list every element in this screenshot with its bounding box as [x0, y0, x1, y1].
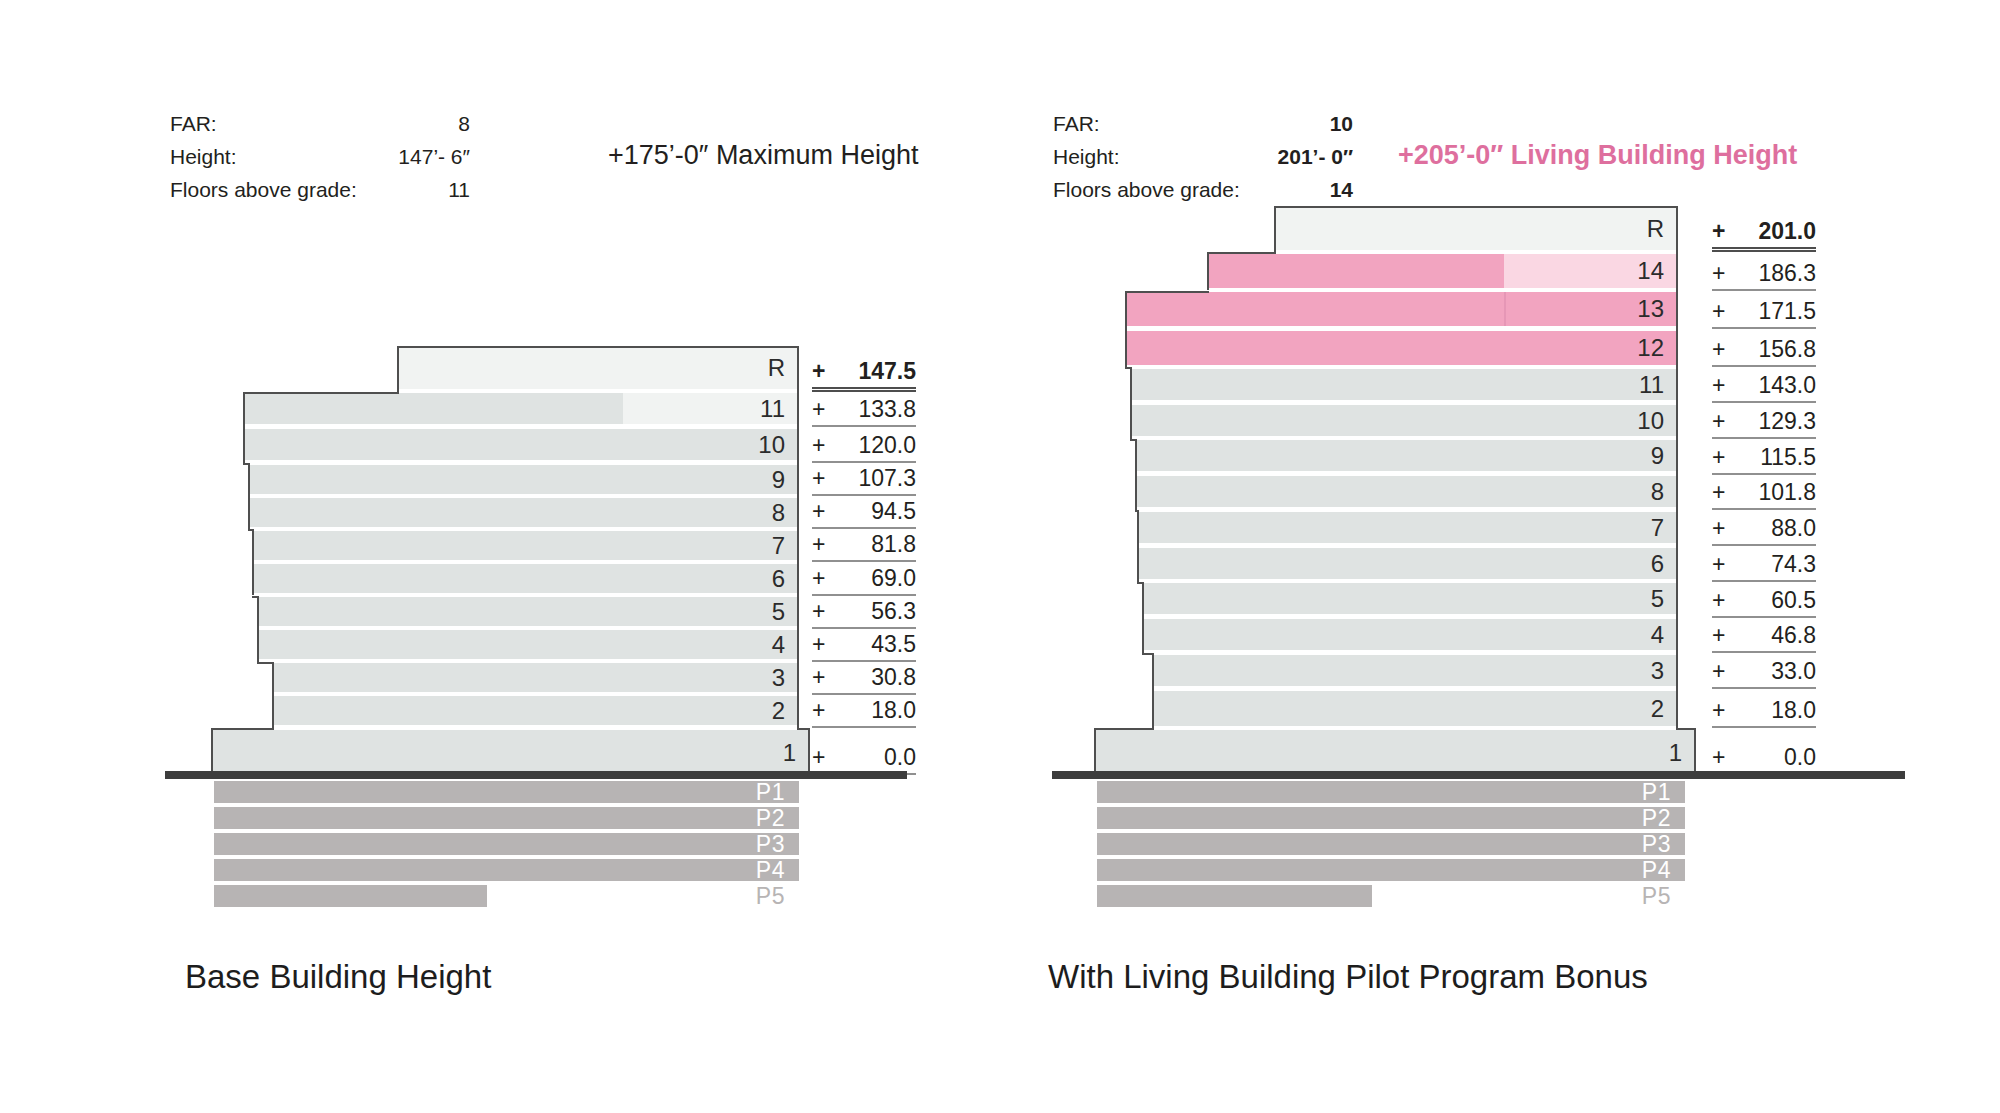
parking-level-label: P1	[1571, 780, 1671, 804]
floor-label: 11	[243, 393, 785, 424]
building-outline-segment	[1152, 689, 1154, 728]
parking-level-label: P2	[685, 806, 785, 830]
parking-level-label: P5	[1571, 884, 1671, 908]
floor-label: 7	[1137, 512, 1664, 543]
building-outline-segment	[1137, 546, 1139, 582]
elevation-number: 30.8	[871, 664, 916, 691]
building-outline-segment	[257, 596, 259, 629]
elevation-plus-sign: +	[1712, 298, 1725, 325]
elevation-number: 18.0	[871, 697, 916, 724]
parking-level-bar	[1097, 885, 1372, 907]
building-outline-segment	[1130, 367, 1132, 403]
parking-level-label: P2	[1571, 806, 1671, 830]
floor-label: 11	[1130, 369, 1664, 400]
floor-label: 9	[248, 465, 785, 494]
floor-label: 6	[1137, 548, 1664, 579]
elevation-plus-sign: +	[812, 531, 825, 558]
elevation-value: +30.8	[812, 663, 916, 695]
elevation-plus-sign: +	[1712, 697, 1725, 724]
elevation-number: 147.5	[858, 358, 916, 385]
elevation-value: +171.5	[1712, 297, 1816, 329]
building-outline-segment	[211, 728, 213, 775]
elevation-value: +101.8	[1712, 478, 1816, 510]
building-outline-segment	[1274, 206, 1676, 208]
building-outline-segment	[243, 427, 245, 463]
elevation-value: +33.0	[1712, 657, 1816, 689]
elevation-plus-sign: +	[812, 432, 825, 459]
floor-label: 1	[1094, 730, 1682, 775]
right-stats-block: FAR: 10 Height: 201’- 0″ Floors above gr…	[1053, 112, 1353, 211]
floor-label: 13	[1125, 292, 1664, 326]
elevation-plus-sign: +	[812, 565, 825, 592]
building-outline-segment	[1207, 252, 1209, 290]
elevation-plus-sign: +	[1712, 744, 1725, 771]
elevation-value: +156.8	[1712, 335, 1816, 367]
elevation-plus-sign: +	[1712, 218, 1725, 245]
left-stats-block: FAR: 8 Height: 147’- 6″ Floors above gra…	[170, 112, 470, 211]
floor-label: 8	[1135, 476, 1664, 507]
building-outline-segment	[1694, 728, 1696, 775]
elevation-value: +115.5	[1712, 443, 1816, 475]
elevation-number: 56.3	[871, 598, 916, 625]
ground-line	[1052, 771, 1905, 779]
building-outline-segment	[252, 562, 254, 595]
building-outline-segment	[1137, 510, 1139, 546]
elevation-plus-sign: +	[812, 631, 825, 658]
elevation-number: 143.0	[1758, 372, 1816, 399]
elevation-number: 186.3	[1758, 260, 1816, 287]
parking-level-label: P3	[1571, 832, 1671, 856]
building-outline-segment	[1142, 618, 1144, 654]
building-outline-segment	[1135, 475, 1137, 511]
elevation-number: 81.8	[871, 531, 916, 558]
parking-level-label: P4	[685, 858, 785, 882]
building-outline-segment	[243, 392, 399, 394]
floor-label: 3	[272, 663, 785, 692]
stat-value: 10	[1265, 112, 1353, 136]
max-height-annotation: +175’-0″ Maximum Height	[608, 140, 918, 171]
building-outline-segment	[252, 529, 254, 562]
floor-label: R	[397, 347, 785, 389]
stat-row-far: FAR: 10	[1053, 112, 1353, 145]
floor-label: 12	[1125, 331, 1664, 365]
parking-level-label: P3	[685, 832, 785, 856]
elevation-plus-sign: +	[812, 396, 825, 423]
building-outline-segment	[1094, 728, 1096, 775]
stat-row-height: Height: 201’- 0″	[1053, 145, 1353, 178]
elevation-value: +18.0	[1712, 696, 1816, 728]
building-outline-segment	[397, 346, 797, 348]
building-outline-segment	[1130, 403, 1132, 439]
elevation-value: +74.3	[1712, 550, 1816, 582]
building-outline-segment	[1676, 728, 1696, 730]
floor-label: 8	[248, 498, 785, 527]
elevation-plus-sign: +	[1712, 658, 1725, 685]
elevation-value: +147.5	[812, 360, 916, 392]
elevation-number: 171.5	[1758, 298, 1816, 325]
elevation-value: +18.0	[812, 696, 916, 728]
building-outline-segment	[272, 695, 274, 728]
elevation-value: +107.3	[812, 464, 916, 496]
elevation-number: 201.0	[1758, 218, 1816, 245]
stat-label: Floors above grade:	[170, 178, 382, 202]
elevation-value: +60.5	[1712, 586, 1816, 618]
elevation-value: +94.5	[812, 497, 916, 529]
parking-level-label: P1	[685, 780, 785, 804]
elevation-number: 43.5	[871, 631, 916, 658]
floor-label: 10	[1130, 405, 1664, 436]
right-caption: With Living Building Pilot Program Bonus	[1048, 958, 1648, 996]
elevation-number: 120.0	[858, 432, 916, 459]
floor-label: 5	[1142, 583, 1664, 614]
parking-level-label: P5	[685, 884, 785, 908]
elevation-value: +186.3	[1712, 259, 1816, 291]
stat-value: 11	[382, 178, 470, 202]
stat-row-height: Height: 147’- 6″	[170, 145, 470, 178]
elevation-value: +81.8	[812, 530, 916, 562]
building-outline-segment	[243, 463, 250, 465]
stat-label: Floors above grade:	[1053, 178, 1265, 202]
elevation-number: 69.0	[871, 565, 916, 592]
elevation-plus-sign: +	[1712, 587, 1725, 614]
elevation-value: +69.0	[812, 564, 916, 596]
building-outline-segment	[1142, 653, 1154, 655]
elevation-value: +88.0	[1712, 514, 1816, 546]
elevation-value: +133.8	[812, 395, 916, 427]
building-outline-segment	[243, 392, 245, 428]
building-outline-segment	[1125, 291, 1127, 329]
floor-label: 4	[257, 630, 785, 659]
elevation-number: 94.5	[871, 498, 916, 525]
stat-row-floors: Floors above grade: 11	[170, 178, 470, 211]
elevation-plus-sign: +	[1712, 260, 1725, 287]
elevation-plus-sign: +	[812, 465, 825, 492]
elevation-value: +129.3	[1712, 407, 1816, 439]
stat-value: 8	[382, 112, 470, 136]
elevation-plus-sign: +	[812, 498, 825, 525]
floor-label: 14	[1207, 254, 1664, 288]
floor-label: 7	[252, 531, 785, 560]
elevation-number: 156.8	[1758, 336, 1816, 363]
elevation-plus-sign: +	[812, 598, 825, 625]
elevation-number: 18.0	[1771, 697, 1816, 724]
building-outline-segment	[252, 596, 259, 598]
building-outline-segment	[1137, 582, 1144, 584]
stat-value: 14	[1265, 178, 1353, 202]
floor-label: 2	[1152, 691, 1664, 726]
elevation-number: 88.0	[1771, 515, 1816, 542]
building-outline-segment	[272, 662, 274, 695]
building-outline-segment	[1142, 582, 1144, 618]
elevation-value: +43.5	[812, 630, 916, 662]
elevation-plus-sign: +	[812, 358, 825, 385]
stat-row-far: FAR: 8	[170, 112, 470, 145]
building-outline-segment	[211, 728, 274, 730]
elevation-plus-sign: +	[1712, 622, 1725, 649]
elevation-value: +120.0	[812, 431, 916, 463]
building-outline-segment	[1676, 206, 1678, 728]
floor-label: 4	[1142, 619, 1664, 650]
elevation-plus-sign: +	[1712, 444, 1725, 471]
building-outline-segment	[1125, 329, 1127, 367]
left-caption: Base Building Height	[185, 958, 491, 996]
floor-label: 2	[272, 696, 785, 725]
floor-label: 5	[257, 597, 785, 626]
elevation-number: 107.3	[858, 465, 916, 492]
elevation-plus-sign: +	[1712, 372, 1725, 399]
stat-label: Height:	[1053, 145, 1265, 169]
elevation-value: +56.3	[812, 597, 916, 629]
building-outline-segment	[1207, 252, 1276, 254]
elevation-plus-sign: +	[812, 697, 825, 724]
stat-label: FAR:	[1053, 112, 1265, 136]
elevation-number: 60.5	[1771, 587, 1816, 614]
building-outline-segment	[1125, 291, 1209, 293]
elevation-value: +201.0	[1712, 220, 1816, 252]
floor-label: R	[1274, 208, 1664, 250]
elevation-number: 0.0	[1784, 744, 1816, 771]
stat-label: FAR:	[170, 112, 382, 136]
elevation-number: 101.8	[1758, 479, 1816, 506]
building-outline-segment	[1152, 653, 1154, 689]
stat-label: Height:	[170, 145, 382, 169]
diagram-canvas: FAR: 8 Height: 147’- 6″ Floors above gra…	[0, 0, 2000, 1113]
building-outline-segment	[257, 629, 259, 662]
building-outline-segment	[257, 662, 274, 664]
elevation-plus-sign: +	[1712, 515, 1725, 542]
elevation-number: 129.3	[1758, 408, 1816, 435]
floor-label: 1	[211, 730, 796, 775]
elevation-value: +46.8	[1712, 621, 1816, 653]
elevation-number: 133.8	[858, 396, 916, 423]
living-building-height-annotation: +205’-0″ Living Building Height	[1398, 140, 1797, 171]
building-outline-segment	[248, 496, 250, 529]
parking-level-label: P4	[1571, 858, 1671, 882]
building-outline-segment	[1130, 439, 1137, 441]
elevation-number: 0.0	[884, 744, 916, 771]
elevation-plus-sign: +	[1712, 336, 1725, 363]
building-outline-segment	[1094, 728, 1154, 730]
building-outline-segment	[1125, 367, 1132, 369]
parking-level-bar	[214, 885, 487, 907]
floor-label: 6	[252, 564, 785, 593]
building-outline-segment	[1135, 439, 1137, 475]
elevation-number: 74.3	[1771, 551, 1816, 578]
elevation-value: +143.0	[1712, 371, 1816, 403]
building-outline-segment	[397, 346, 399, 392]
floor-label: 9	[1135, 440, 1664, 471]
ground-line	[165, 771, 907, 779]
elevation-number: 46.8	[1771, 622, 1816, 649]
elevation-number: 115.5	[1760, 444, 1816, 471]
elevation-plus-sign: +	[1712, 551, 1725, 578]
building-outline-segment	[248, 463, 250, 496]
floor-label: 10	[243, 429, 785, 460]
building-outline-segment	[248, 529, 254, 531]
elevation-plus-sign: +	[812, 664, 825, 691]
floor-label: 3	[1152, 655, 1664, 686]
elevation-plus-sign: +	[1712, 408, 1725, 435]
building-outline-segment	[797, 346, 799, 729]
elevation-number: 33.0	[1771, 658, 1816, 685]
building-outline-segment	[808, 728, 810, 775]
building-outline-segment	[1135, 510, 1139, 512]
stat-value: 201’- 0″	[1265, 145, 1353, 169]
elevation-plus-sign: +	[812, 744, 825, 771]
stat-value: 147’- 6″	[382, 145, 470, 169]
elevation-plus-sign: +	[1712, 479, 1725, 506]
building-outline-segment	[1274, 206, 1276, 252]
